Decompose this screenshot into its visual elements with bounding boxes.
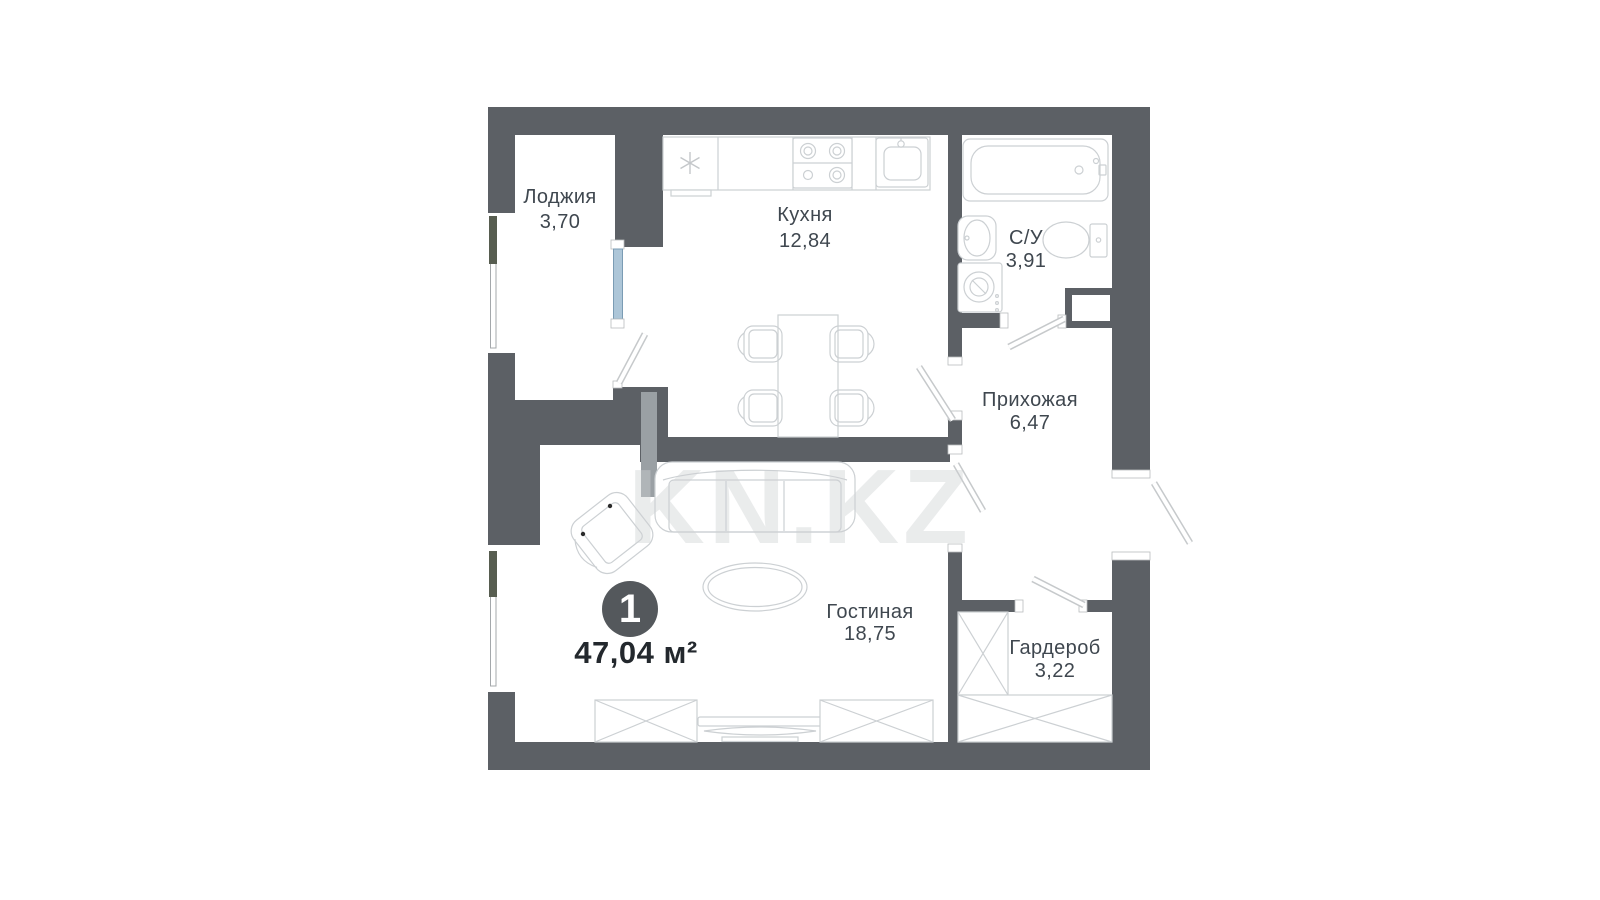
wall-right-lower	[1112, 552, 1150, 770]
room-area-hallway: 6,47	[1010, 412, 1051, 434]
floor-plan-page: KN.KZ Лоджия 3,70 Кухня 12,84 С/У 3,91 П…	[0, 0, 1600, 900]
entrance-door	[1154, 483, 1190, 543]
room-name-loggia: Лоджия	[523, 186, 596, 208]
wall-loggia-kitchen-upper	[615, 135, 663, 247]
room-area-wardrobe: 3,22	[1035, 660, 1076, 682]
wall-divider-pier	[948, 420, 962, 445]
room-name-bathroom: С/У	[1009, 227, 1043, 249]
dining-set	[738, 315, 874, 437]
watermark: KN.KZ	[628, 448, 972, 566]
wall-top	[488, 107, 1150, 135]
room-area-kitchen: 12,84	[779, 230, 831, 252]
wall-loggia-kitchen-lower	[613, 387, 668, 445]
room-name-kitchen: Кухня	[777, 204, 833, 226]
washing-machine-icon	[958, 263, 1002, 312]
wall-right-upper	[1112, 107, 1150, 478]
bathroom-door	[1009, 319, 1064, 347]
french-window-glass	[614, 249, 623, 319]
room-area-loggia: 3,70	[540, 211, 581, 233]
total-area-label: 47,04 м²	[574, 635, 697, 670]
window-lintel	[489, 551, 497, 597]
counter-ledge	[671, 190, 711, 196]
loggia-door	[619, 334, 645, 383]
ventilation-shaft	[1069, 292, 1114, 325]
kitchen-fixtures	[663, 137, 930, 437]
kitchen-door	[919, 367, 953, 420]
room-count-number: 1	[619, 587, 641, 631]
wall-wardrobe-top-right	[1087, 600, 1112, 612]
summary: 1 47,04 м²	[574, 581, 697, 670]
living-room-window	[489, 551, 497, 686]
armchair-dot	[581, 532, 585, 536]
wall-wardrobe-top-left	[962, 600, 1023, 612]
closet-box-vertical	[958, 612, 1008, 695]
loggia-window	[489, 216, 497, 348]
wall-bathroom-bottom	[948, 313, 1008, 328]
stove-icon	[793, 138, 852, 188]
armchair-dot	[608, 504, 612, 508]
kitchen-sink-icon	[876, 137, 928, 187]
room-name-hallway: Прихожая	[982, 389, 1078, 411]
tv-console-icon	[698, 717, 822, 742]
closet-box-bottom	[958, 695, 1112, 742]
wall-left-upper	[488, 107, 515, 213]
bathtub-icon	[963, 139, 1108, 201]
room-name-living: Гостиная	[826, 601, 913, 623]
room-name-wardrobe: Гардероб	[1009, 637, 1100, 659]
floor-plan-image: KN.KZ Лоджия 3,70 Кухня 12,84 С/У 3,91 П…	[0, 0, 1600, 900]
window-lintel	[489, 216, 497, 264]
toilet-icon	[1043, 222, 1107, 258]
wall-bottom	[488, 742, 1150, 770]
dining-table	[778, 315, 838, 437]
wardrobe-box-right	[820, 700, 933, 742]
wardrobe-box-left	[595, 700, 697, 742]
washbasin-icon	[958, 216, 996, 260]
room-area-bathroom: 3,91	[1006, 250, 1047, 272]
coffee-table-oval	[703, 563, 807, 611]
room-area-living: 18,75	[844, 623, 896, 645]
wardrobe-door	[1033, 579, 1084, 605]
wall-left-thick	[488, 400, 540, 545]
bathroom-fixtures	[958, 139, 1108, 312]
french-window-loggia	[611, 240, 624, 328]
